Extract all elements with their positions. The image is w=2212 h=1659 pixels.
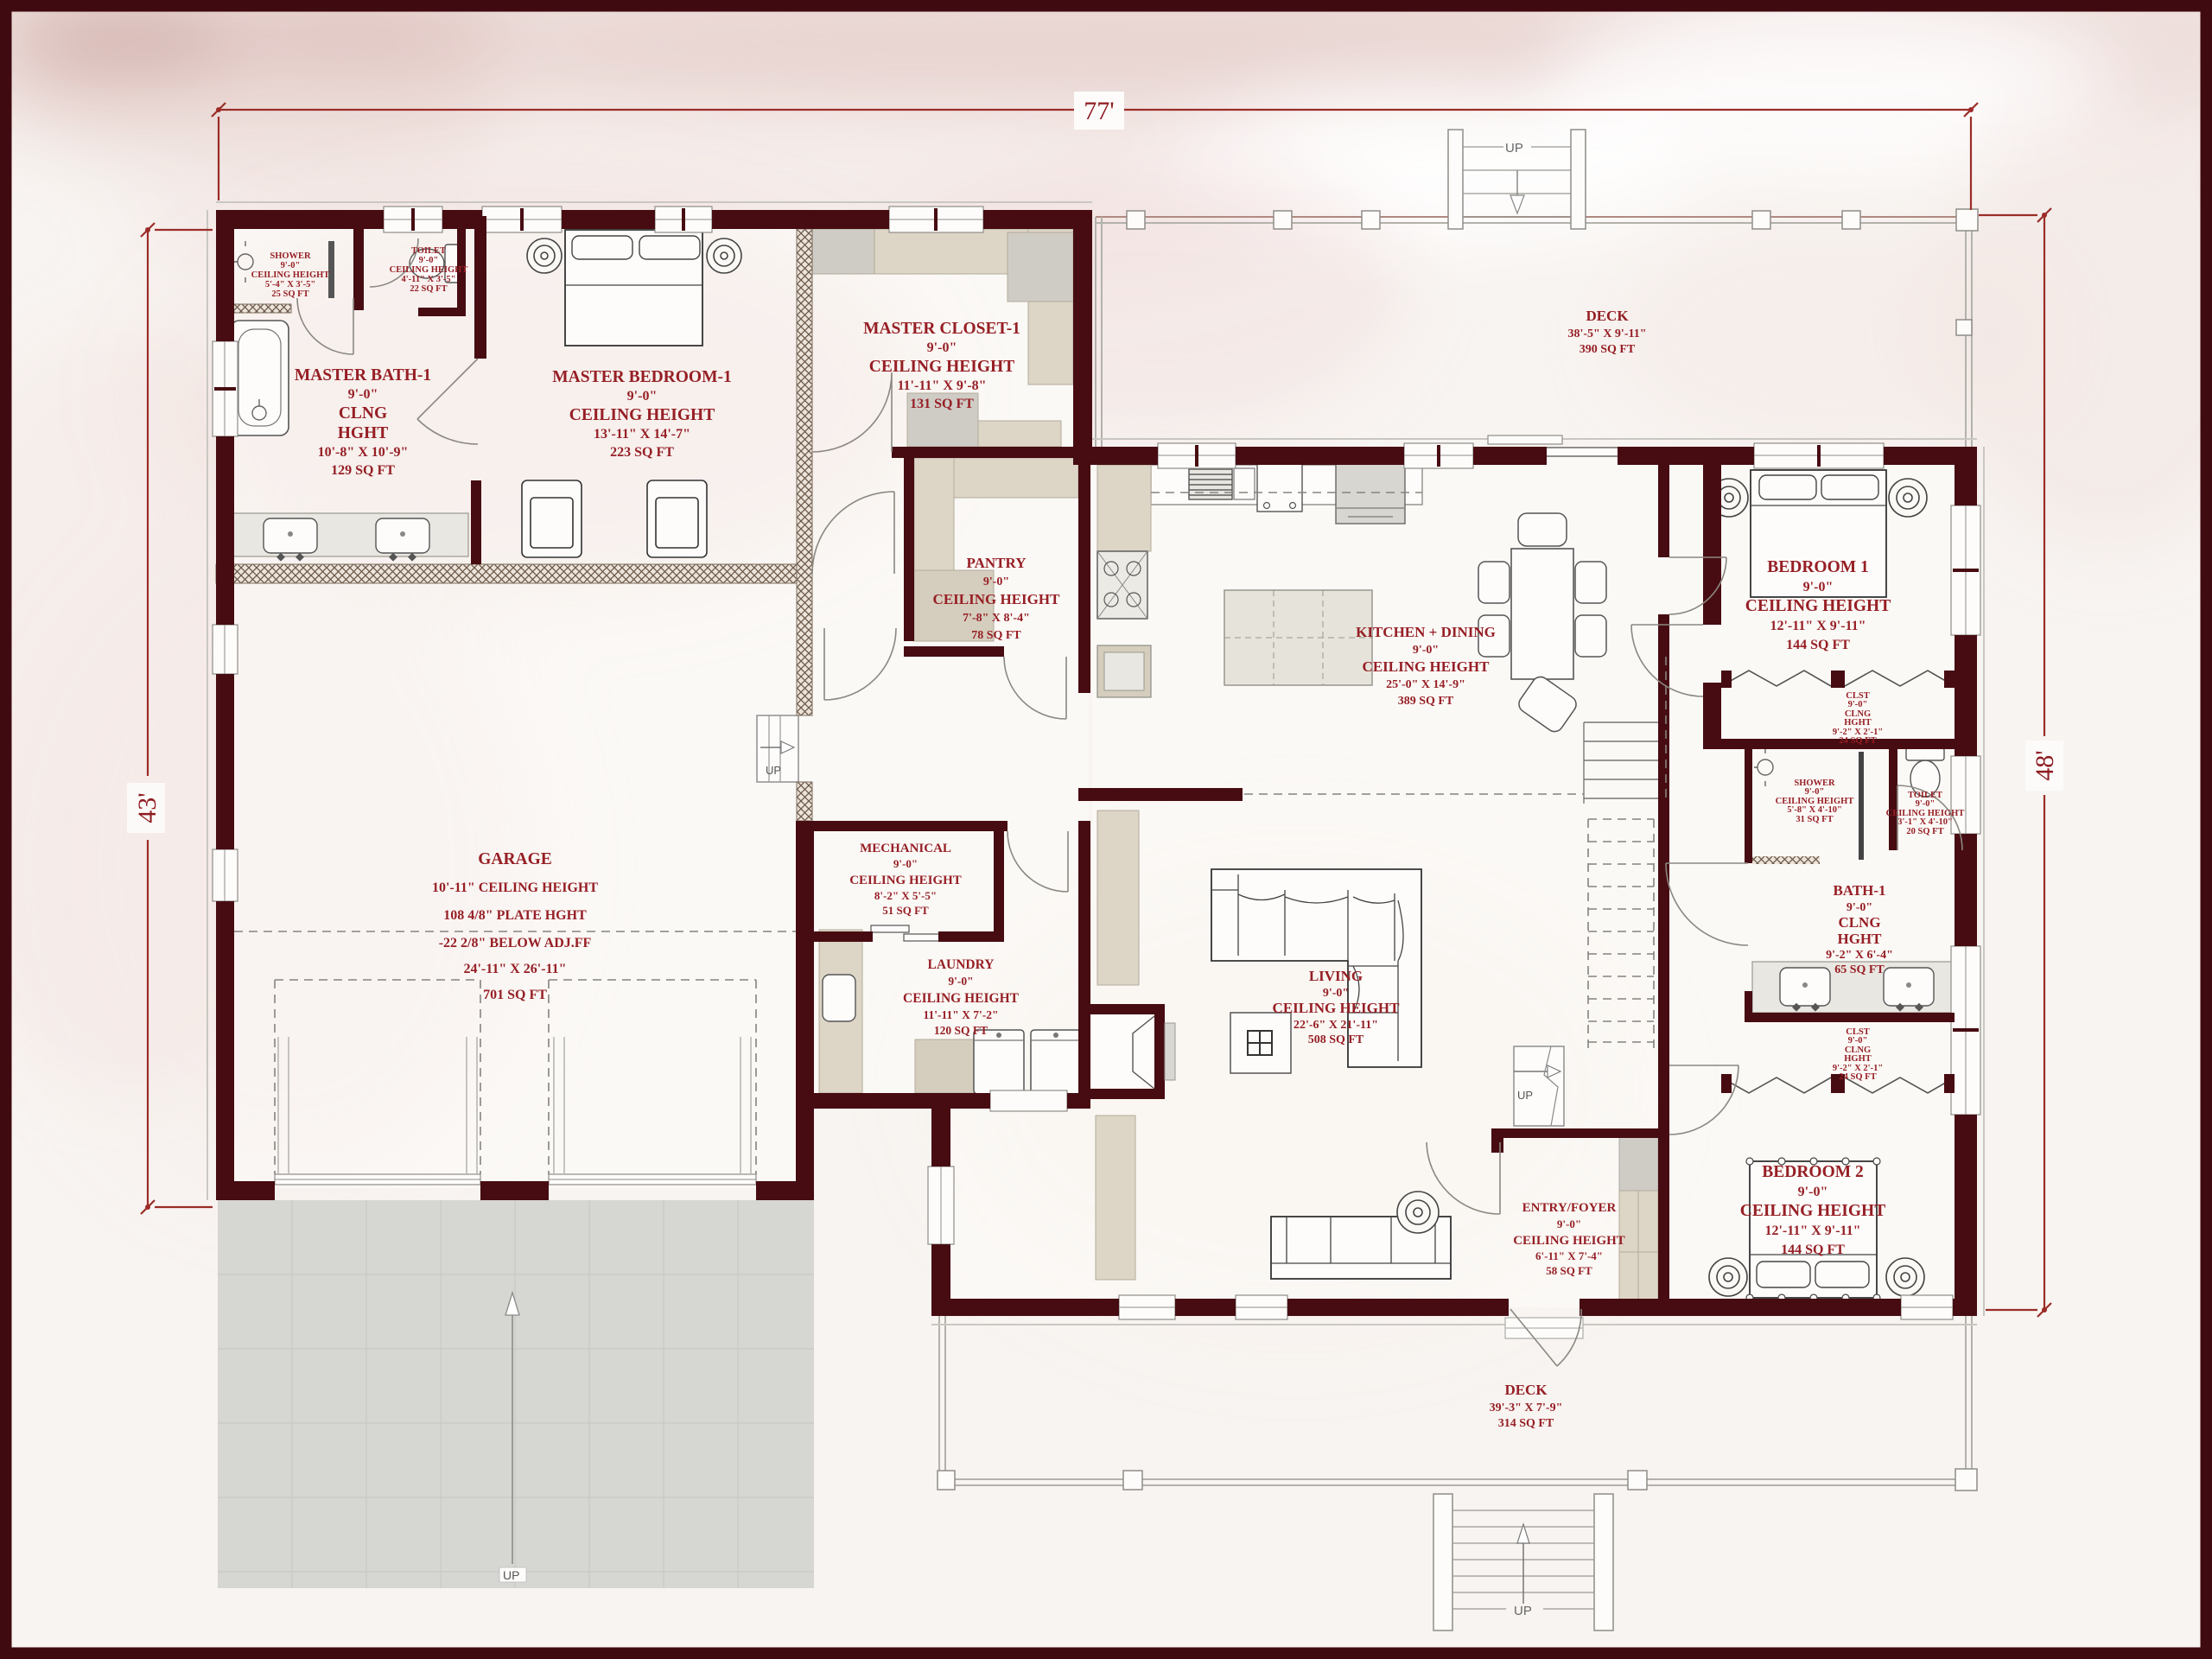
svg-text:4'-11" X 3'-5": 4'-11" X 3'-5" <box>402 275 456 284</box>
svg-text:144 SQ FT: 144 SQ FT <box>1786 638 1850 652</box>
svg-text:3'-1" X 4'-10": 3'-1" X 4'-10" <box>1897 817 1953 827</box>
svg-text:MECHANICAL: MECHANICAL <box>860 842 951 855</box>
svg-text:223 SQ FT: 223 SQ FT <box>610 445 674 460</box>
svg-text:20 SQ FT: 20 SQ FT <box>1906 827 1943 836</box>
svg-text:51 SQ FT: 51 SQ FT <box>882 904 929 917</box>
svg-text:CEILING HEIGHT: CEILING HEIGHT <box>569 406 715 424</box>
svg-text:CEILING HEIGHT: CEILING HEIGHT <box>251 270 330 280</box>
svg-text:CEILING HEIGHT: CEILING HEIGHT <box>1745 597 1891 615</box>
svg-text:HGHT: HGHT <box>1844 718 1872 728</box>
svg-text:DECK: DECK <box>1586 308 1629 324</box>
svg-text:6'-11" X 7'-4": 6'-11" X 7'-4" <box>1535 1249 1603 1262</box>
svg-text:-22 2/8" BELOW ADJ.FF: -22 2/8" BELOW ADJ.FF <box>439 936 592 950</box>
svg-text:LIVING: LIVING <box>1309 968 1363 984</box>
svg-text:39'-3" X 7'-9": 39'-3" X 7'-9" <box>1490 1402 1563 1414</box>
svg-text:9'-0": 9'-0" <box>948 975 973 988</box>
svg-text:11'-11" X 7'-2": 11'-11" X 7'-2" <box>924 1008 999 1021</box>
svg-text:DECK: DECK <box>1504 1382 1548 1398</box>
svg-text:9'-0": 9'-0" <box>1805 787 1825 797</box>
svg-text:48': 48' <box>2031 750 2059 780</box>
svg-text:KITCHEN + DINING: KITCHEN + DINING <box>1356 624 1496 640</box>
svg-text:9'-0": 9'-0" <box>927 340 957 355</box>
svg-text:9'-2" X 6'-4": 9'-2" X 6'-4" <box>1826 949 1893 962</box>
svg-text:CEILING HEIGHT: CEILING HEIGHT <box>390 265 468 275</box>
svg-text:HGHT: HGHT <box>1837 931 1882 947</box>
svg-text:CEILING HEIGHT: CEILING HEIGHT <box>1740 1202 1886 1220</box>
svg-text:10'-8" X 10'-9": 10'-8" X 10'-9" <box>318 445 409 460</box>
svg-text:38'-5" X 9'-11": 38'-5" X 9'-11" <box>1568 327 1647 340</box>
svg-text:508 SQ FT: 508 SQ FT <box>1308 1033 1364 1046</box>
svg-text:25 SQ FT: 25 SQ FT <box>271 289 308 299</box>
svg-text:ENTRY/FOYER: ENTRY/FOYER <box>1522 1201 1617 1215</box>
svg-text:5'-4" X 3'-5": 5'-4" X 3'-5" <box>265 280 315 289</box>
svg-text:HGHT: HGHT <box>1844 1054 1872 1064</box>
svg-text:BEDROOM 2: BEDROOM 2 <box>1762 1163 1864 1181</box>
svg-text:144 SQ FT: 144 SQ FT <box>1781 1243 1845 1257</box>
svg-text:9'-0": 9'-0" <box>1916 799 1935 809</box>
svg-text:CEILING HEIGHT: CEILING HEIGHT <box>1363 658 1491 675</box>
svg-text:9'-0": 9'-0" <box>1798 1185 1828 1199</box>
svg-text:MASTER BATH-1: MASTER BATH-1 <box>295 366 431 385</box>
svg-text:9'-0": 9'-0" <box>1323 987 1349 1000</box>
svg-text:43': 43' <box>133 792 162 823</box>
svg-text:7'-8" X 8'-4": 7'-8" X 8'-4" <box>963 612 1030 625</box>
svg-text:22 SQ FT: 22 SQ FT <box>410 284 447 294</box>
svg-text:58 SQ FT: 58 SQ FT <box>1546 1264 1592 1277</box>
svg-text:BATH-1: BATH-1 <box>1833 882 1885 899</box>
svg-text:108 4/8" PLATE HGHT: 108 4/8" PLATE HGHT <box>443 908 587 923</box>
svg-text:24'-11" X 26'-11": 24'-11" X 26'-11" <box>463 962 566 976</box>
svg-text:24 SQ FT: 24 SQ FT <box>1839 736 1876 746</box>
svg-text:CEILING HEIGHT: CEILING HEIGHT <box>1513 1234 1625 1248</box>
svg-text:77': 77' <box>1084 97 1114 125</box>
svg-text:CLNG: CLNG <box>339 404 387 423</box>
svg-text:12'-11" X 9'-11": 12'-11" X 9'-11" <box>1764 1224 1860 1238</box>
svg-text:LAUNDRY: LAUNDRY <box>928 957 995 972</box>
svg-text:131 SQ FT: 131 SQ FT <box>910 397 974 411</box>
svg-text:10'-11" CEILING HEIGHT: 10'-11" CEILING HEIGHT <box>432 880 598 895</box>
svg-text:UP: UP <box>1517 1089 1533 1102</box>
svg-text:389 SQ FT: 389 SQ FT <box>1398 695 1454 708</box>
svg-text:129 SQ FT: 129 SQ FT <box>331 463 395 478</box>
svg-text:12'-11" X 9'-11": 12'-11" X 9'-11" <box>1770 619 1866 633</box>
svg-text:9'-0": 9'-0" <box>419 256 439 265</box>
svg-text:PANTRY: PANTRY <box>967 555 1027 571</box>
svg-text:24 SQ FT: 24 SQ FT <box>1839 1072 1876 1082</box>
svg-text:25'-0" X 14'-9": 25'-0" X 14'-9" <box>1386 678 1465 691</box>
svg-text:701 SQ FT: 701 SQ FT <box>483 988 547 1002</box>
svg-text:CEILING HEIGHT: CEILING HEIGHT <box>903 991 1020 1006</box>
svg-text:GARAGE: GARAGE <box>478 850 552 868</box>
svg-text:CEILING HEIGHT: CEILING HEIGHT <box>1273 1000 1401 1016</box>
svg-text:31 SQ FT: 31 SQ FT <box>1796 815 1833 824</box>
svg-text:9'-0": 9'-0" <box>1848 1036 1868 1046</box>
svg-text:TOILET: TOILET <box>411 246 446 256</box>
svg-text:9'-0": 9'-0" <box>627 389 658 404</box>
svg-text:78 SQ FT: 78 SQ FT <box>971 629 1021 642</box>
svg-text:11'-11" X 9'-8": 11'-11" X 9'-8" <box>897 378 986 393</box>
svg-text:9'-0": 9'-0" <box>983 575 1009 588</box>
svg-text:CEILING HEIGHT: CEILING HEIGHT <box>933 591 1061 607</box>
svg-text:BEDROOM 1: BEDROOM 1 <box>1767 558 1869 576</box>
svg-text:CEILING HEIGHT: CEILING HEIGHT <box>849 874 962 887</box>
svg-text:9'-0": 9'-0" <box>281 261 301 270</box>
svg-text:UP: UP <box>503 1568 519 1582</box>
svg-text:UP: UP <box>1505 141 1523 156</box>
svg-text:9'-0": 9'-0" <box>348 387 378 402</box>
svg-text:MASTER BEDROOM-1: MASTER BEDROOM-1 <box>552 368 731 386</box>
svg-text:120 SQ FT: 120 SQ FT <box>934 1024 988 1037</box>
svg-text:MASTER CLOSET-1: MASTER CLOSET-1 <box>863 320 1020 338</box>
svg-text:9'-0": 9'-0" <box>1557 1217 1581 1230</box>
svg-text:SHOWER: SHOWER <box>270 251 311 261</box>
svg-text:314 SQ FT: 314 SQ FT <box>1498 1417 1554 1430</box>
svg-text:UP: UP <box>1514 1604 1532 1618</box>
svg-text:13'-11" X 14'-7": 13'-11" X 14'-7" <box>594 427 690 442</box>
svg-text:9'-0": 9'-0" <box>1847 901 1872 914</box>
svg-text:HGHT: HGHT <box>338 424 389 442</box>
svg-text:9'-0": 9'-0" <box>1413 644 1439 657</box>
svg-text:5'-8" X 4'-10": 5'-8" X 4'-10" <box>1787 805 1842 815</box>
svg-text:9'-0": 9'-0" <box>1848 700 1868 709</box>
svg-text:9'-0": 9'-0" <box>893 857 918 870</box>
svg-text:CLNG: CLNG <box>1838 914 1880 931</box>
svg-text:9'-0": 9'-0" <box>1803 580 1834 594</box>
svg-text:8'-2" X 5'-5": 8'-2" X 5'-5" <box>874 889 937 902</box>
svg-text:CEILING HEIGHT: CEILING HEIGHT <box>869 358 1015 376</box>
svg-text:UP: UP <box>766 764 781 777</box>
svg-text:65 SQ FT: 65 SQ FT <box>1834 963 1885 976</box>
svg-text:22'-6" X 21'-11": 22'-6" X 21'-11" <box>1294 1019 1378 1032</box>
svg-text:390 SQ FT: 390 SQ FT <box>1580 343 1636 356</box>
